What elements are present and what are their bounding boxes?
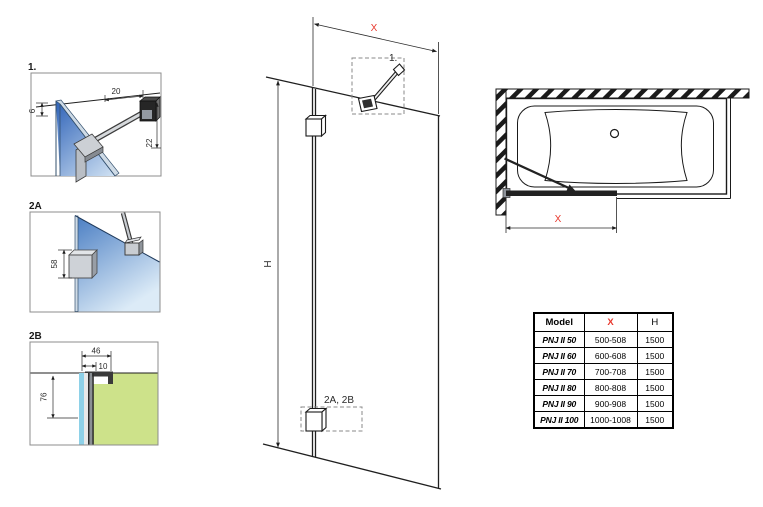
model-cell: PNJ II 100 — [534, 412, 584, 429]
dim-label-22: 22 — [145, 138, 154, 147]
model-cell: PNJ II 80 — [534, 380, 584, 396]
table-row: PNJ II 60 600-608 1500 — [534, 348, 673, 364]
x-cell: 1000-1008 — [584, 412, 637, 429]
header-model: Model — [534, 313, 584, 332]
dim-label-46: 46 — [92, 347, 101, 356]
dim-label-76: 76 — [40, 392, 49, 401]
detail-2a-panel: 2A — [29, 201, 160, 312]
tub-basin — [545, 110, 687, 184]
glass-and-profile-strips — [79, 373, 94, 445]
top-view-drawing: X — [496, 89, 749, 233]
x-cell: 600-608 — [584, 348, 637, 364]
detail-1-panel: 1. — [28, 62, 161, 182]
callout-1-label: 1. — [389, 53, 397, 64]
elevation-drawing: H X 1. — [263, 17, 441, 489]
model-cell: PNJ II 90 — [534, 396, 584, 412]
table-row: PNJ II 100 1000-1008 1500 — [534, 412, 673, 429]
wall-profile-clamp — [69, 250, 97, 278]
dim-label-height: H — [263, 260, 274, 267]
wall-top-hatched — [496, 89, 749, 98]
dim-label-10: 10 — [99, 362, 108, 371]
h-cell: 1500 — [637, 380, 673, 396]
callout-2ab-label: 2A, 2B — [324, 395, 354, 406]
wall-section-green — [93, 374, 158, 445]
header-x: X — [584, 313, 637, 332]
detail-2b-label: 2B — [29, 331, 42, 342]
model-cell: PNJ II 60 — [534, 348, 584, 364]
model-cell: PNJ II 50 — [534, 332, 584, 348]
technical-diagram: 1. — [0, 0, 763, 507]
h-cell: 1500 — [637, 348, 673, 364]
table-row: PNJ II 70 700-708 1500 — [534, 364, 673, 380]
h-cell: 1500 — [637, 364, 673, 380]
glass-outline — [263, 77, 441, 489]
x-cell: 500-508 — [584, 332, 637, 348]
bathtub — [507, 99, 731, 199]
detail-2b-panel: 2B 46 — [29, 331, 158, 445]
detail-1-label: 1. — [28, 62, 37, 73]
model-cell: PNJ II 70 — [534, 364, 584, 380]
table-row: PNJ II 50 500-508 1500 — [534, 332, 673, 348]
drain-icon — [611, 130, 619, 138]
lower-wall-bracket — [306, 409, 326, 432]
table-header-row: Model X H — [534, 313, 673, 332]
dim-label-20: 20 — [112, 87, 121, 96]
detail-2a-label: 2A — [29, 201, 42, 212]
dim-label-6: 6 — [28, 108, 37, 113]
h-cell: 1500 — [637, 412, 673, 429]
upper-wall-bracket — [306, 116, 326, 137]
header-h: H — [637, 313, 673, 332]
spec-sheet: 1. — [0, 0, 763, 507]
callout-1 — [352, 58, 405, 114]
dim-label-58: 58 — [50, 259, 59, 268]
dim-label-width-topview: X — [555, 214, 562, 225]
h-cell: 1500 — [637, 332, 673, 348]
table-row: PNJ II 90 900-908 1500 — [534, 396, 673, 412]
h-cell: 1500 — [637, 396, 673, 412]
dim-label-width: X — [371, 23, 378, 34]
x-cell: 900-908 — [584, 396, 637, 412]
table-row: PNJ II 80 800-808 1500 — [534, 380, 673, 396]
x-cell: 800-808 — [584, 380, 637, 396]
x-cell: 700-708 — [584, 364, 637, 380]
spec-table: Model X H PNJ II 50 500-508 1500 PNJ II … — [533, 312, 674, 429]
